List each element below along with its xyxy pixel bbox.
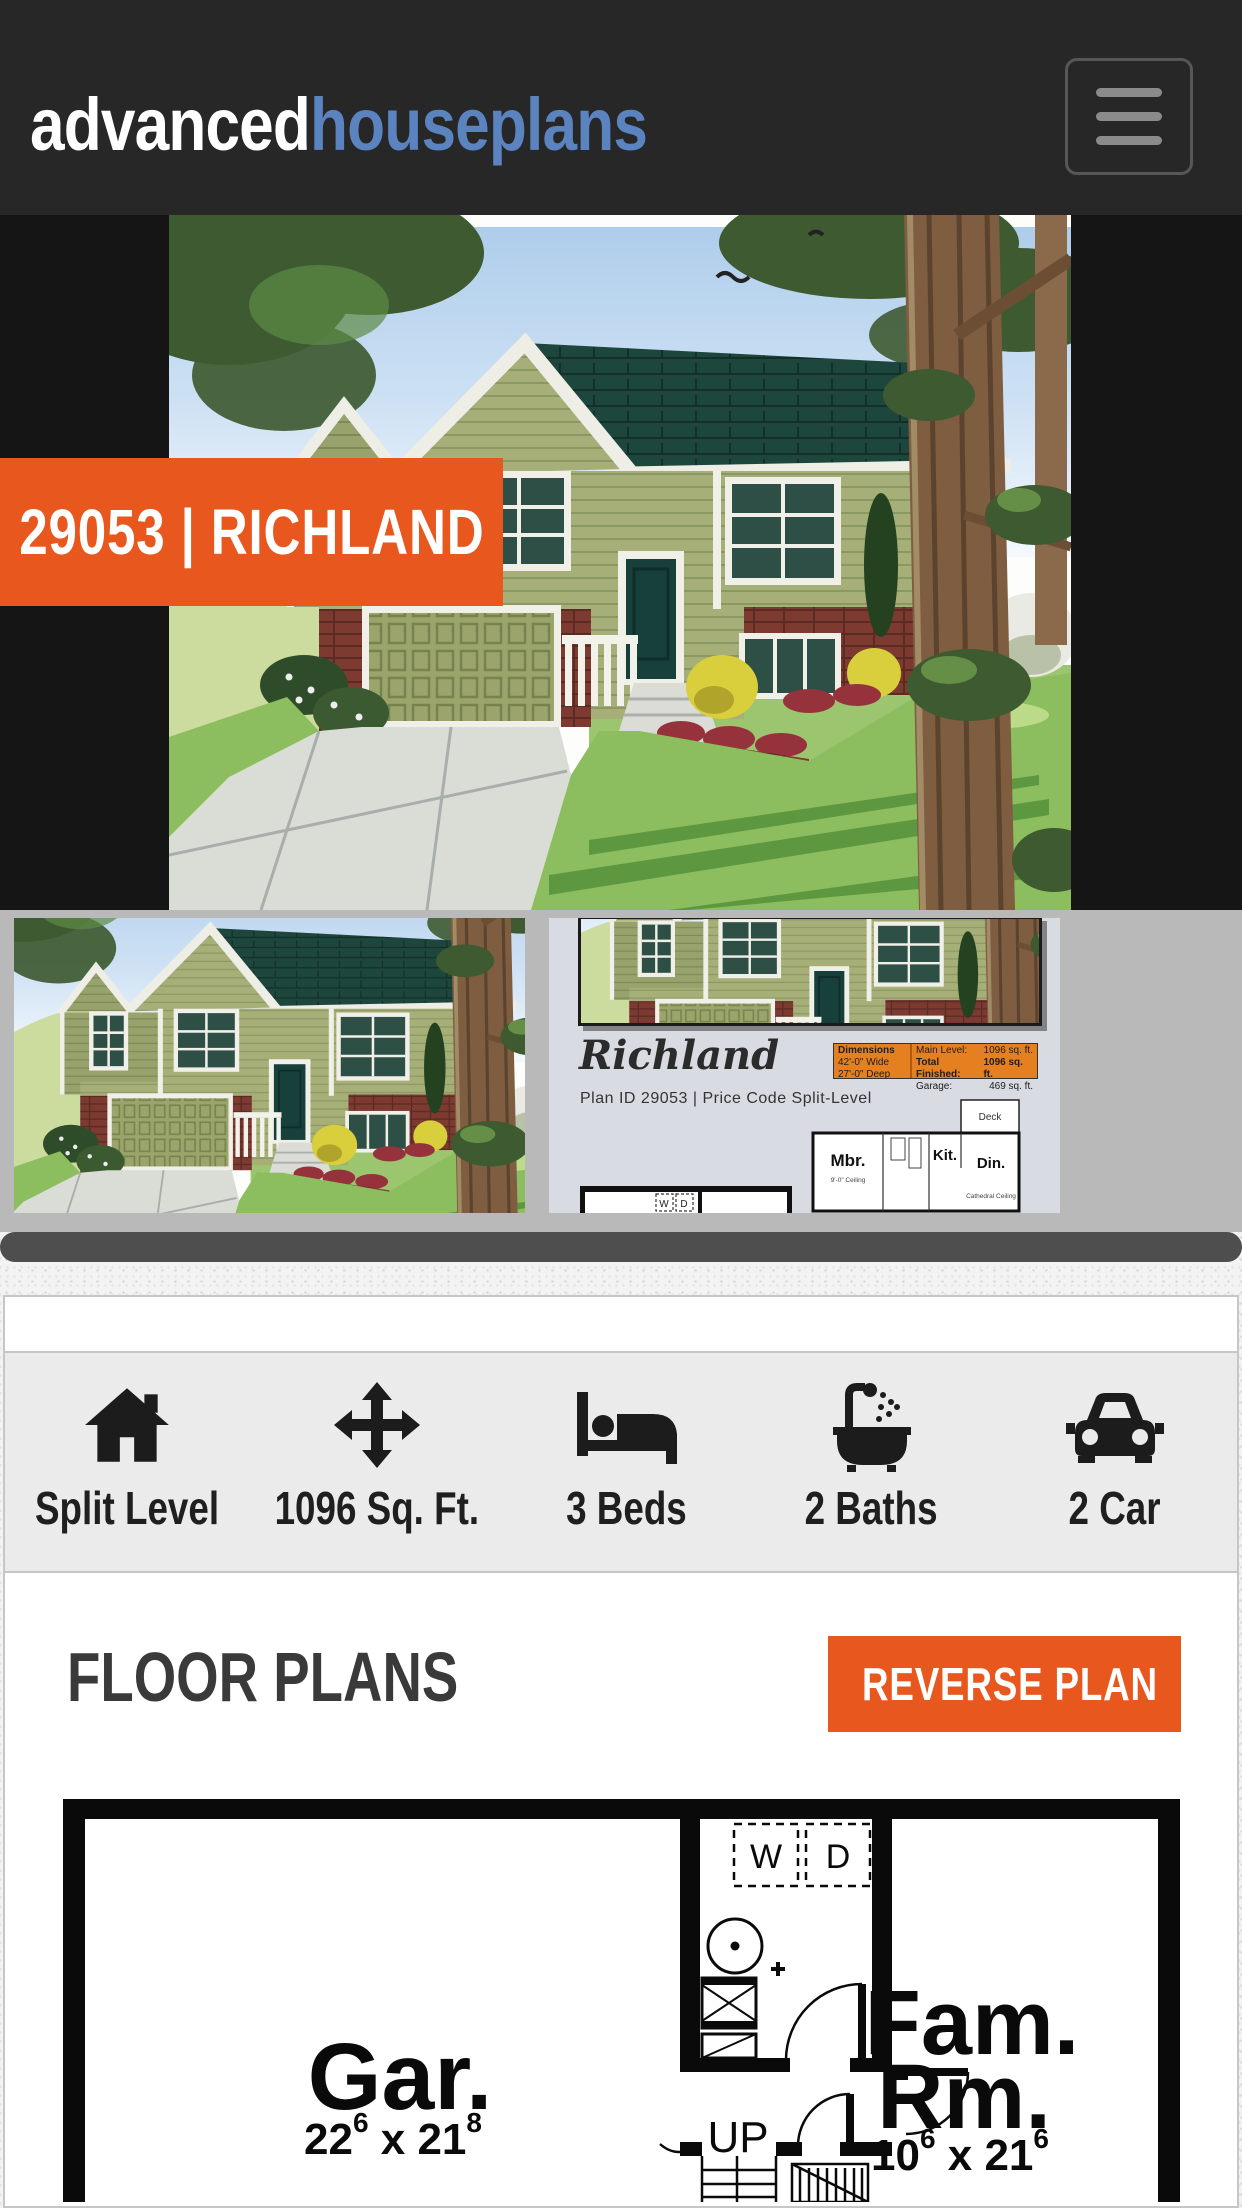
table-row-value: 1096 sq. ft. [984,1045,1033,1057]
gallery-scrollbar-thumb[interactable] [0,1232,1242,1262]
section-title: FLOOR PLANS [67,1637,458,1717]
house-rendering-thumb [14,918,525,1213]
logo-text-secondary: houseplans [310,83,647,166]
svg-text:Deck: Deck [979,1112,1003,1123]
spacer-panel [5,1297,1237,1353]
table-row-label: Total Finished: [916,1057,983,1081]
hamburger-icon [1096,136,1162,145]
sheet-house-art [581,919,1039,1023]
car-icon [1064,1385,1166,1465]
svg-text:9'-0" Ceiling: 9'-0" Ceiling [831,1177,866,1184]
svg-text:226 x 218: 226 x 218 [304,2107,482,2164]
svg-text:Mbr.: Mbr. [831,1151,866,1170]
table-header: Dimensions [838,1045,906,1057]
menu-toggle-button[interactable] [1065,58,1193,175]
hamburger-icon [1096,88,1162,97]
navbar: advancedhouseplans [0,0,1242,215]
table-row-label: Garage: [916,1081,952,1093]
svg-text:Din.: Din. [977,1155,1005,1172]
logo-text-primary: advanced [30,83,310,166]
feature-beds: 3 Beds [505,1353,749,1571]
table-dim-wide: 42'-0" Wide [838,1057,906,1069]
sheet-mini-floorplan: Deck Mbr. 9'-0" Ceiling Kit. Din. Cathed… [811,1098,1023,1213]
reverse-plan-label: REVERSE PLAN [862,1657,1158,1711]
content-cards: Split Level 1096 Sq. Ft. 3 Beds [3,1295,1239,2208]
features-panel: Split Level 1096 Sq. Ft. 3 Beds [5,1353,1237,1573]
move-arrows-icon [332,1380,422,1470]
feature-label: 2 Car [1069,1481,1161,1535]
table-dim-deep: 27'-0" Deep [838,1069,906,1081]
sheet-rendering-strip [578,918,1042,1026]
floor-plans-section: FLOOR PLANS REVERSE PLAN [5,1573,1237,2204]
home-icon [81,1382,173,1468]
table-row-value: 1096 sq. ft. [983,1057,1033,1081]
bath-icon [823,1377,919,1473]
hero-gallery: 29053 | RICHLAND [0,215,1242,910]
feature-style: Split Level [5,1353,249,1571]
feature-baths: 2 Baths [749,1353,993,1571]
svg-text:D: D [826,1838,851,1876]
feature-label: Split Level [35,1481,219,1535]
plan-title-badge: 29053 | RICHLAND [0,458,503,606]
sheet-dimensions-table: Dimensions 42'-0" Wide 27'-0" Deep Main … [833,1043,1038,1079]
svg-text:W: W [750,1838,782,1876]
svg-text:Kit.: Kit. [933,1147,957,1164]
floor-plan-drawing: W D Gar. 226 x 218 Fam. [63,1799,1180,2202]
sheet-plan-name: Richland [579,1032,779,1079]
svg-text:106 x 216: 106 x 216 [871,2123,1049,2180]
thumbnail-strip: Richland Plan ID 29053 | Price Code Spli… [0,910,1242,1232]
thumbnail-rendering[interactable] [14,918,525,1213]
feature-sqft: 1096 Sq. Ft. [249,1353,505,1571]
svg-text:Cathedral Ceiling: Cathedral Ceiling [966,1193,1016,1200]
feature-label: 3 Beds [566,1481,687,1535]
hamburger-icon [1096,112,1162,121]
sheet-mini-floorplan-lower: W D [580,1186,792,1213]
plan-title: 29053 | RICHLAND [0,458,485,606]
feature-label: 1096 Sq. Ft. [275,1481,480,1535]
feature-label: 2 Baths [804,1481,937,1535]
svg-text:D: D [680,1199,687,1210]
reverse-plan-button[interactable]: REVERSE PLAN [828,1636,1181,1732]
svg-text:UP: UP [707,2113,768,2162]
thumbnail-plan-sheet[interactable]: Richland Plan ID 29053 | Price Code Spli… [549,918,1060,1213]
site-logo[interactable]: advancedhouseplans [30,88,647,162]
bed-icon [573,1384,681,1466]
table-row-value: 469 sq. ft. [989,1081,1033,1093]
table-row-label: Main Level: [916,1045,967,1057]
feature-garage: 2 Car [993,1353,1237,1571]
svg-text:W: W [659,1199,669,1210]
